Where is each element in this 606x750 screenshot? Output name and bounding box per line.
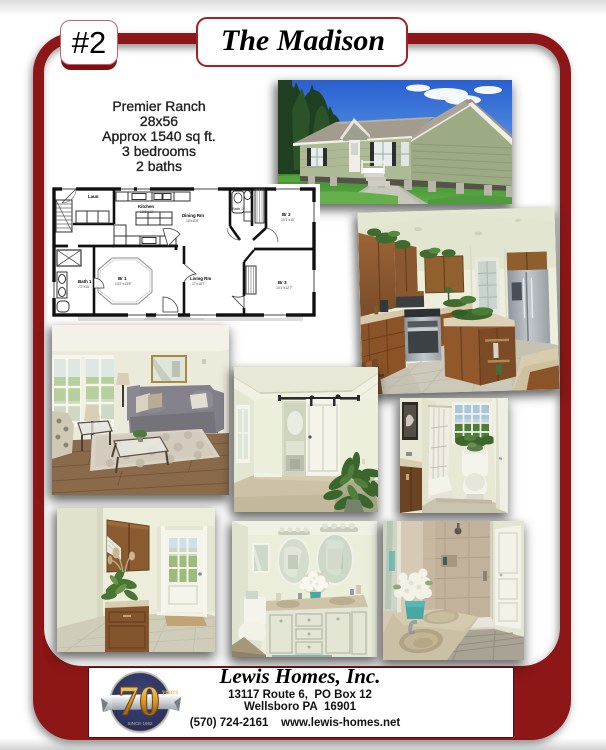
svg-text:7'2"x10': 7'2"x10'	[78, 285, 90, 289]
svg-text:Bath 1: Bath 1	[78, 279, 92, 284]
svg-text:70: 70	[118, 679, 160, 725]
svg-text:Bath 2: Bath 2	[232, 206, 244, 211]
svg-text:10'x11'6": 10'x11'6"	[186, 219, 200, 223]
svg-text:17'x16'7": 17'x16'7"	[192, 282, 206, 286]
svg-text:12'6"x12': 12'6"x12'	[140, 210, 154, 214]
svg-text:Laun: Laun	[88, 194, 99, 199]
svg-text:Br 3: Br 3	[278, 280, 287, 285]
svg-text:Br 1: Br 1	[118, 276, 127, 281]
svg-text:13'2"x13'8": 13'2"x13'8"	[115, 282, 133, 286]
svg-text:SINCE 1952: SINCE 1952	[127, 721, 153, 726]
svg-text:10'1"x10': 10'1"x10'	[281, 218, 295, 222]
svg-text:Dining Rm: Dining Rm	[182, 213, 204, 218]
svg-text:years: years	[161, 687, 178, 696]
svg-text:Living Rm: Living Rm	[190, 276, 211, 281]
svg-text:Kitchen: Kitchen	[138, 204, 154, 209]
svg-text:10'1"x12'7": 10'1"x12'7"	[276, 286, 294, 290]
svg-text:Br 2: Br 2	[282, 212, 291, 217]
